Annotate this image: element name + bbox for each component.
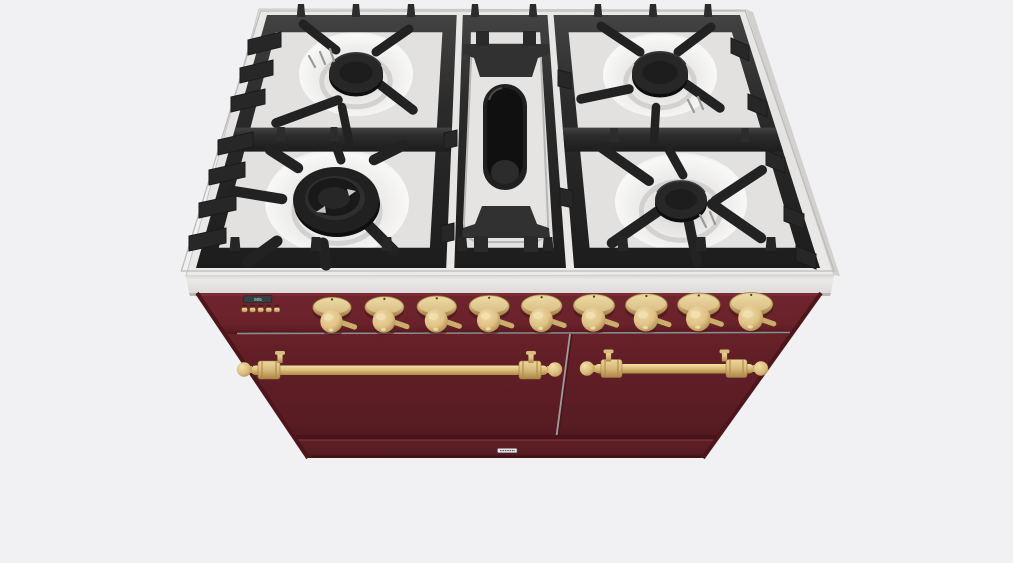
- svg-text:905: 905: [254, 297, 262, 302]
